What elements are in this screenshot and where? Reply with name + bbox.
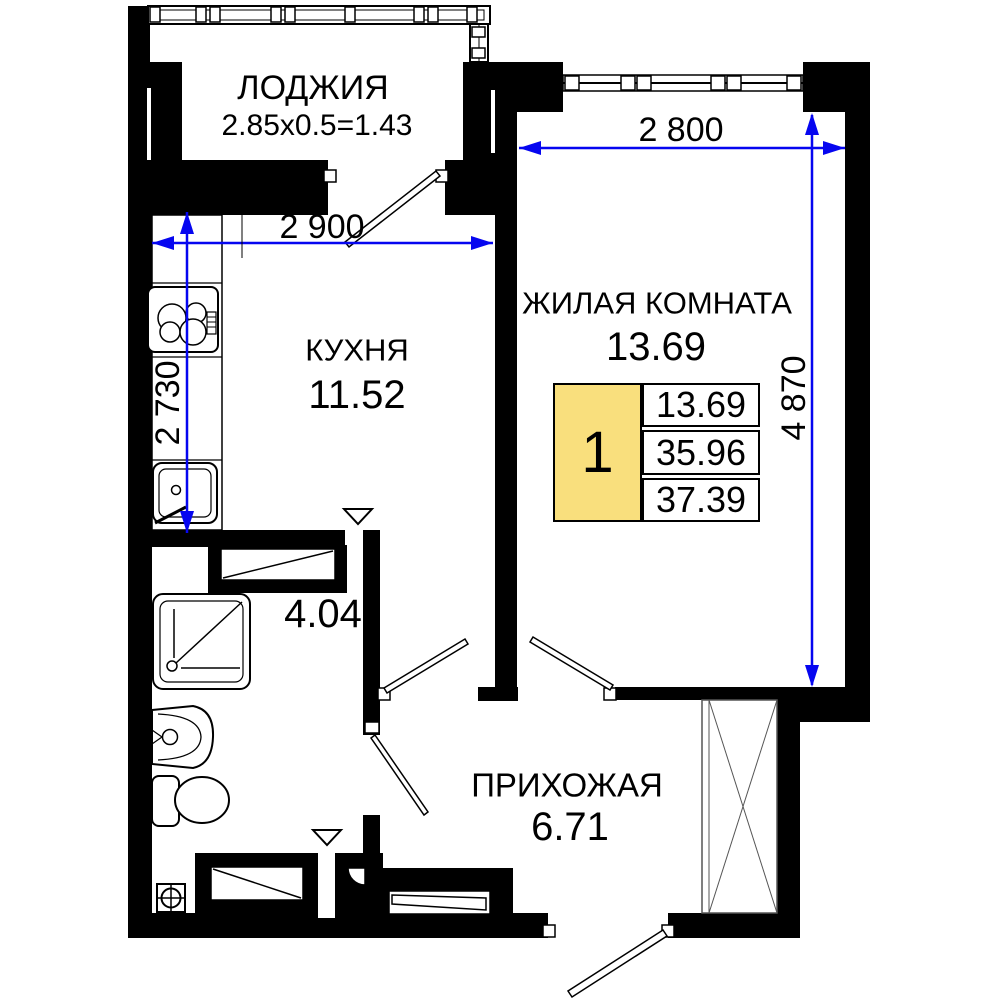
loggia-label: ЛОДЖИЯ <box>237 71 388 105</box>
living-area-value: 13.69 <box>642 383 760 427</box>
vent-duct-bathroom <box>211 867 303 900</box>
living-room-door <box>530 637 616 700</box>
dim-living-depth-label: 4 870 <box>777 355 811 440</box>
floor-plan: ЛОДЖИЯ 2.85x0.5=1.43 КУХНЯ 11.52 ЖИЛАЯ К… <box>0 0 1000 1000</box>
vent-triangle-kitchen-icon <box>344 509 372 524</box>
apartment-info-box: 1 13.69 35.96 37.39 <box>553 383 760 522</box>
kitchen-label: КУХНЯ <box>305 335 409 366</box>
shower-icon <box>153 594 250 689</box>
bathroom-door <box>365 722 428 815</box>
living-room-label: ЖИЛАЯ КОМНАТА <box>522 288 792 319</box>
living-room-window <box>563 75 803 91</box>
floor-drain-icon <box>157 884 185 912</box>
hallway-label: ПРИХОЖАЯ <box>471 769 663 802</box>
area-without-loggia-value: 35.96 <box>642 430 760 475</box>
dim-kitchen-depth-label: 2 730 <box>151 360 185 445</box>
hallway-area-label: 6.71 <box>531 807 609 847</box>
loggia-window <box>148 6 490 62</box>
dim-kitchen-width-label: 2 900 <box>279 210 364 244</box>
wardrobe-icon <box>702 700 777 913</box>
living-area-label: 13.69 <box>606 327 706 367</box>
bathroom-area-label: 4.04 <box>284 594 362 634</box>
floor-plan-drawing <box>0 0 1000 1000</box>
hallway-niche-door <box>389 891 490 914</box>
kitchen-door <box>378 639 468 700</box>
dim-living-width-label: 2 800 <box>638 113 723 147</box>
washbasin-icon <box>152 706 213 768</box>
stove-icon <box>148 287 218 352</box>
vent-duct-kitchen <box>221 549 335 580</box>
total-area-value: 37.39 <box>642 478 760 522</box>
vent-triangle-bathroom-icon <box>313 830 341 845</box>
loggia-calc-label: 2.85x0.5=1.43 <box>221 111 412 141</box>
kitchen-area-label: 11.52 <box>308 375 405 415</box>
entrance-door <box>543 925 674 997</box>
rooms-count-badge: 1 <box>553 383 642 522</box>
toilet-icon <box>152 776 229 826</box>
